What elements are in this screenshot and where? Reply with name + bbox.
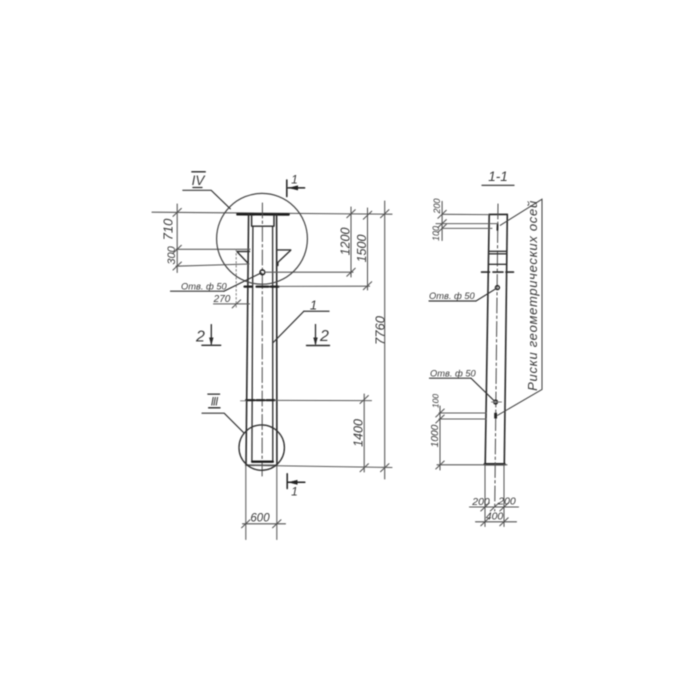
svg-text:600: 600	[250, 513, 270, 525]
svg-text:2: 2	[319, 328, 329, 345]
svg-text:200: 200	[497, 496, 516, 508]
svg-text:7760: 7760	[373, 315, 388, 345]
svg-text:1: 1	[291, 485, 298, 499]
svg-text:IV: IV	[192, 173, 207, 188]
svg-text:1: 1	[310, 298, 317, 313]
svg-text:Риски геометрических осей: Риски геометрических осей	[525, 200, 540, 391]
svg-text:1000: 1000	[430, 424, 441, 447]
svg-text:Отв. ф 50: Отв. ф 50	[181, 282, 228, 292]
svg-text:100: 100	[431, 394, 441, 408]
svg-text:1500: 1500	[355, 235, 369, 263]
svg-text:270: 270	[213, 294, 231, 305]
svg-text:100: 100	[431, 226, 441, 241]
svg-text:200: 200	[432, 198, 442, 214]
svg-text:Отв. ф 50: Отв. ф 50	[430, 369, 477, 379]
svg-text:300: 300	[166, 245, 178, 264]
svg-text:1: 1	[291, 173, 298, 187]
svg-text:III: III	[211, 397, 219, 409]
svg-text:1-1: 1-1	[488, 169, 508, 184]
svg-text:200: 200	[471, 496, 490, 508]
svg-text:2: 2	[195, 329, 205, 346]
svg-text:400: 400	[486, 511, 504, 523]
svg-text:710: 710	[161, 218, 176, 240]
svg-text:Отв. ф 50: Отв. ф 50	[429, 291, 476, 301]
svg-text:1200: 1200	[339, 228, 353, 256]
svg-text:1400: 1400	[352, 419, 366, 447]
